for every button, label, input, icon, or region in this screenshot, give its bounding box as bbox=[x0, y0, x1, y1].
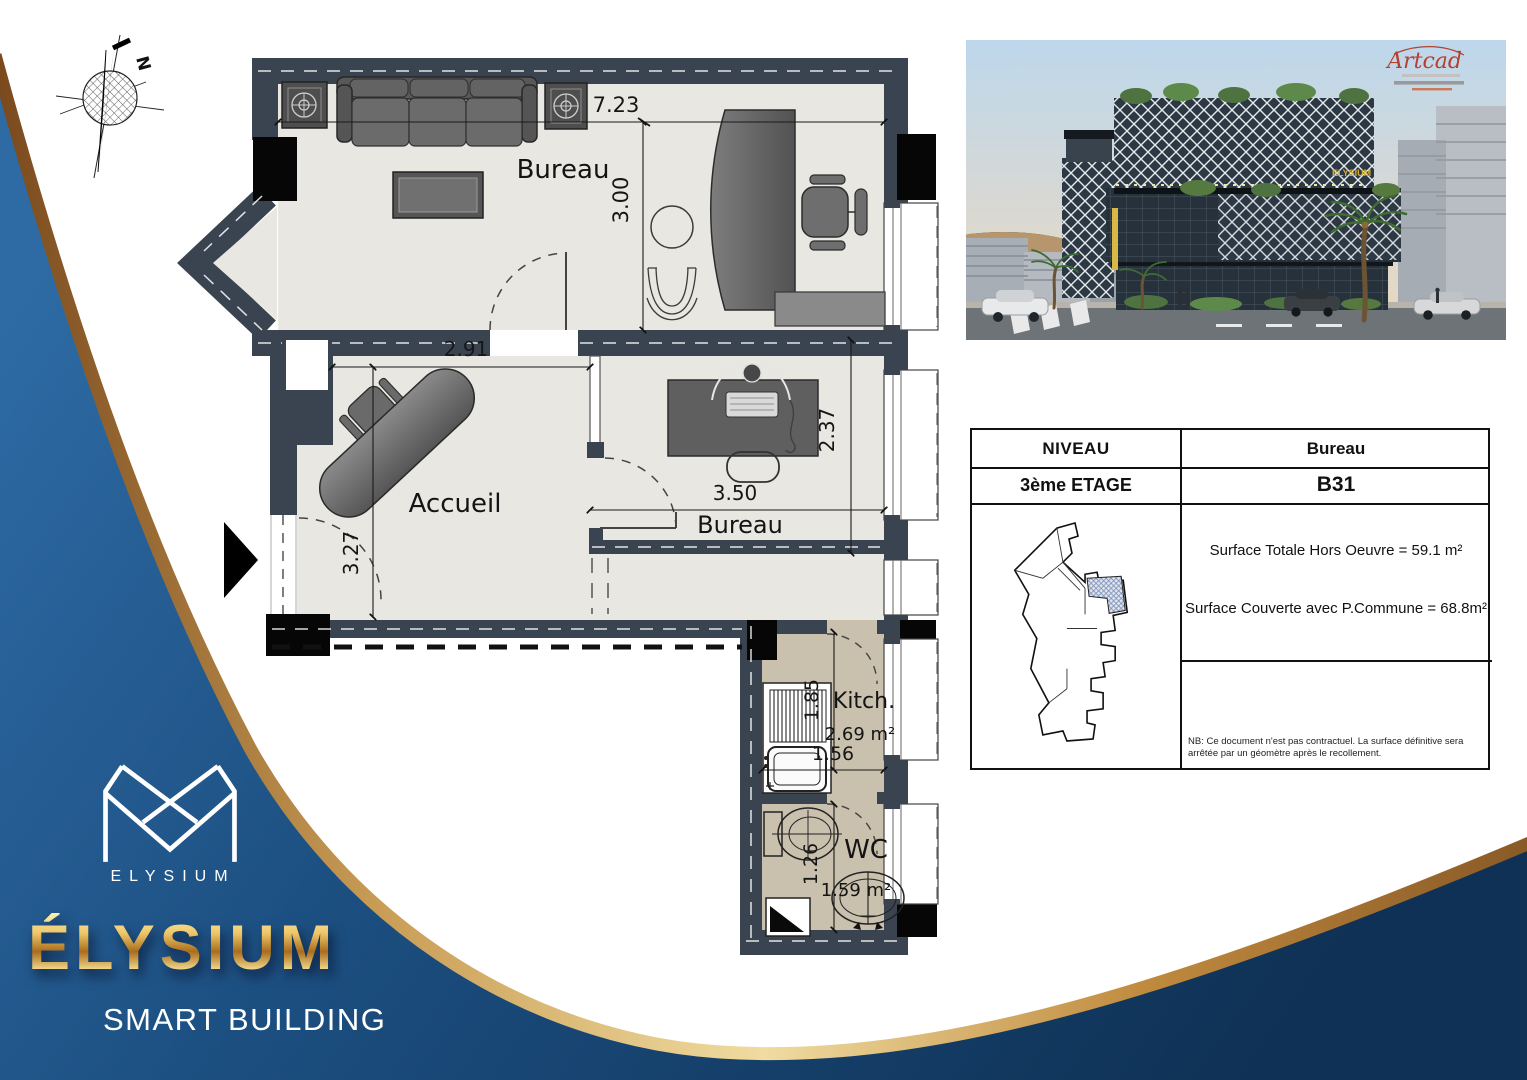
brand-tagline: SMART BUILDING bbox=[103, 1002, 386, 1038]
key-plan bbox=[988, 518, 1164, 744]
entrance-arrow-icon bbox=[224, 522, 258, 598]
monogram-caption: ELYSIUM bbox=[88, 868, 258, 886]
dim-kitchen-depth: 1.85 bbox=[801, 679, 823, 721]
room-label-kitchen: Kitch. bbox=[833, 689, 895, 714]
building-sign: ELYSIUM bbox=[1332, 168, 1371, 178]
dim-accueil-depth: 3.27 bbox=[339, 531, 363, 576]
north-compass-icon: N bbox=[56, 35, 164, 178]
sofa bbox=[337, 77, 537, 146]
table-row-divider bbox=[972, 503, 1488, 505]
level-value: 3ème ETAGE bbox=[972, 467, 1180, 503]
table-row-divider bbox=[1180, 660, 1492, 662]
disclaimer-note: NB: Ce document n'est pas contractuel. L… bbox=[1188, 736, 1484, 759]
side-table-lamp bbox=[282, 82, 327, 128]
dim-accueil-width: 2.91 bbox=[444, 337, 489, 361]
brochure-page: N bbox=[0, 0, 1527, 1080]
brand-wordmark: ÉLYSIUM bbox=[28, 912, 337, 984]
duct-shaft bbox=[284, 338, 330, 392]
dim-bureau-mid-depth: 2.37 bbox=[815, 408, 839, 453]
floor-plan: Bureau Accueil Bureau Kitch. 2.69 m² WC … bbox=[196, 58, 938, 955]
coffee-table bbox=[393, 172, 483, 218]
dim-bureau-mid-width: 3.50 bbox=[713, 481, 758, 505]
room-label-accueil: Accueil bbox=[409, 489, 502, 519]
area-label-wc: 1.59 m² bbox=[821, 880, 892, 901]
artcad-logo: Artcad bbox=[1385, 47, 1464, 91]
dim-kitchen-width: 1.56 bbox=[812, 743, 854, 765]
building-render: ELYSIUM bbox=[966, 40, 1506, 340]
level-header: NIVEAU bbox=[972, 430, 1180, 467]
room-label-bureau-mid: Bureau bbox=[697, 511, 783, 539]
surface-covered: Surface Couverte avec P.Commune = 68.8m² bbox=[1180, 596, 1492, 620]
room-label-wc: WC bbox=[844, 835, 888, 865]
unit-type-header: Bureau bbox=[1180, 430, 1492, 467]
surface-total: Surface Totale Hors Oeuvre = 59.1 m² bbox=[1180, 538, 1492, 562]
dim-bureau-top-width: 7.23 bbox=[593, 93, 640, 117]
area-label-kitchen: 2.69 m² bbox=[825, 724, 896, 745]
north-label: N bbox=[131, 54, 154, 73]
unit-info-table: NIVEAU Bureau 3ème ETAGE B31 Surface Tot… bbox=[970, 428, 1490, 770]
dim-wc-depth: 1.26 bbox=[800, 843, 822, 885]
unit-code: B31 bbox=[1180, 467, 1492, 503]
room-label-bureau-top: Bureau bbox=[517, 155, 610, 185]
dim-bureau-top-depth: 3.00 bbox=[609, 177, 633, 224]
elysium-monogram-icon bbox=[95, 760, 245, 864]
